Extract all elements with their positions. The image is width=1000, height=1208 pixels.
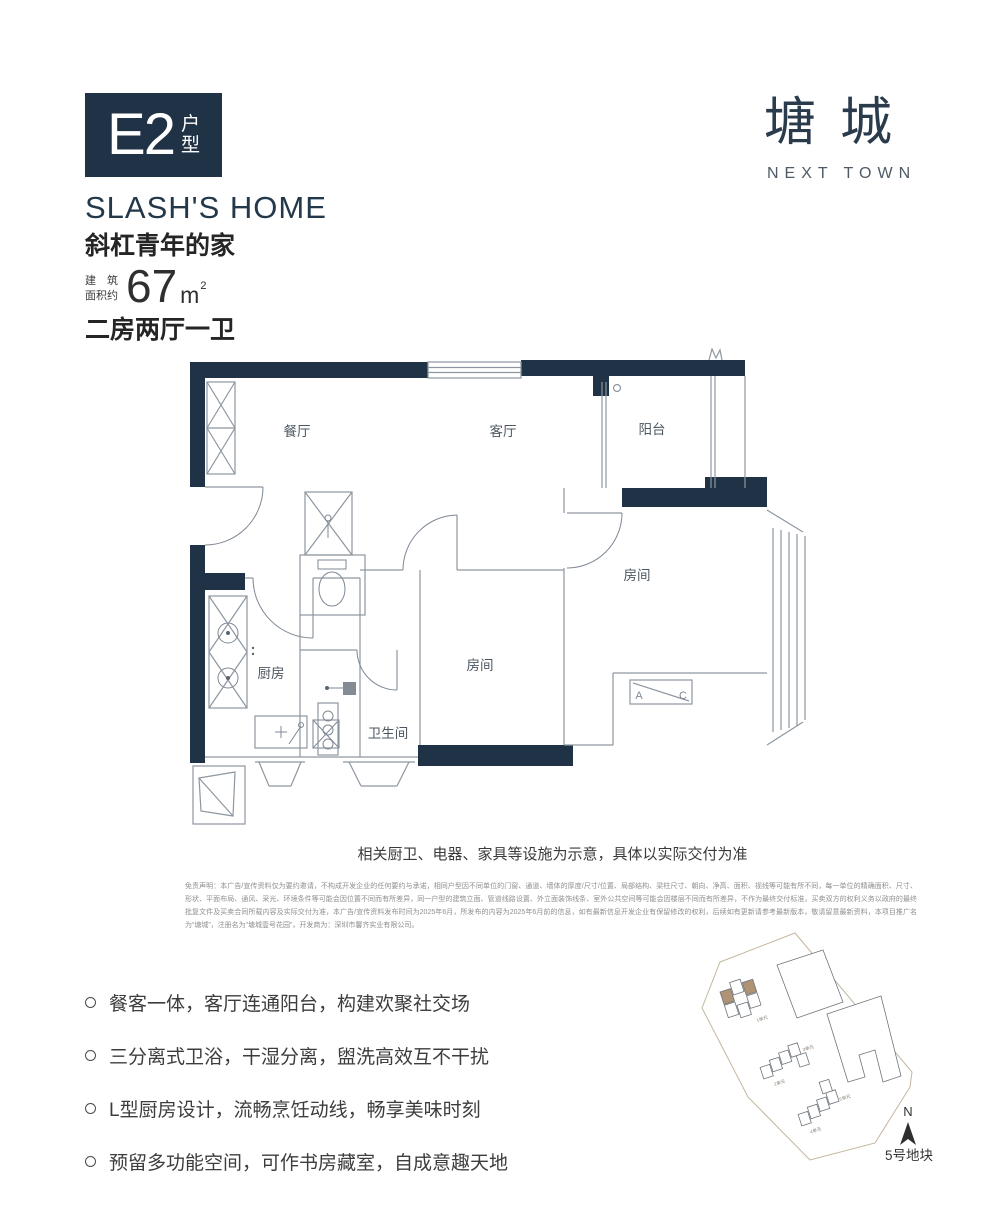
north-label: N (903, 1104, 912, 1119)
stove (209, 596, 254, 708)
headline-cn: 斜杠青年的家 (85, 226, 235, 262)
feature-item: 预留多功能空间，可作书房藏室，自成意趣天地 (85, 1148, 508, 1175)
toilet-room (300, 555, 365, 615)
building-block-l-shape (827, 996, 901, 1082)
building-cluster-2: 3单元 2单元 (756, 1038, 822, 1090)
room-label-dining: 餐厅 (284, 424, 311, 439)
area-exponent: 2 (200, 280, 206, 292)
corner-casement-window (193, 766, 245, 824)
area-label-line2: 面积约 (85, 289, 118, 304)
area-label-line1: 建 筑 (85, 274, 118, 289)
kitchen-sink (255, 716, 307, 748)
brand-logo: 塘城 NEXT TOWN (764, 80, 934, 183)
unit-label: 3单元 (802, 1043, 816, 1053)
bullet-circle-icon (85, 997, 96, 1008)
feature-item: L型厨房设计，流畅烹饪动线，畅享美味时刻 (85, 1095, 508, 1122)
site-plan: 1单元 3单元 2单元 5单元 4单元 N 5号地块 (695, 930, 965, 1195)
unit-type-suffix-bottom: 型 (181, 135, 200, 156)
layout-description: 二房两厅一卫 (85, 310, 235, 346)
feature-text: 餐客一体，客厅连通阳台，构建欢聚社交场 (109, 989, 470, 1016)
bullet-circle-icon (85, 1156, 96, 1167)
living-window (428, 362, 521, 378)
bedroom-right-walls (564, 488, 767, 745)
unit-label: 4单元 (809, 1125, 823, 1135)
room-label-balcony: 阳台 (639, 422, 666, 437)
unit-label: 1单元 (756, 1014, 770, 1024)
brand-logo-cn: 塘城 (764, 80, 934, 155)
plan-caption: 相关厨卫、电器、家具等设施为示意，具体以实际交付为准 (185, 843, 920, 864)
feature-item: 三分离式卫浴，干湿分离，盥洗高效互不干扰 (85, 1042, 508, 1069)
north-arrow-icon: N (900, 1104, 916, 1145)
building-cluster-1: 1单元 (718, 975, 769, 1032)
shower-head-icon (325, 682, 356, 695)
floor-plan: A C (185, 348, 920, 830)
feature-text: 预留多功能空间，可作书房藏室，自成意趣天地 (109, 1148, 508, 1175)
feature-list: 餐客一体，客厅连通阳台，构建欢聚社交场 三分离式卫浴，干湿分离，盥洗高效互不干扰… (85, 989, 508, 1201)
bullet-circle-icon (85, 1050, 96, 1061)
unit-type-suffix: 户 型 (181, 114, 200, 156)
feature-text: 三分离式卫浴，干湿分离，盥洗高效互不干扰 (109, 1042, 489, 1069)
building-cluster-3: 5单元 4单元 (791, 1074, 859, 1137)
area-value: 67 (126, 266, 177, 307)
bedroom-center-walls (360, 515, 564, 745)
shower-room (305, 492, 352, 555)
disclaimer-text: 免责声明：本广告/宣传资料仅为要约邀请，不构成开发企业的任何要约与承诺，相同户型… (185, 880, 917, 932)
room-label-living: 客厅 (490, 423, 517, 439)
balcony-glazing (602, 376, 745, 488)
area-info: 建 筑 面积约 67 m2 (85, 266, 206, 307)
room-label-bathroom: 卫生间 (368, 726, 409, 741)
entry-door (205, 487, 263, 545)
area-label: 建 筑 面积约 (85, 274, 118, 304)
room-label-bedroom-right: 房间 (624, 568, 651, 583)
brand-logo-en: NEXT TOWN (767, 165, 934, 183)
floor-plan-walls (190, 360, 767, 766)
washing-machine (313, 720, 339, 748)
building-block-large (777, 950, 843, 1018)
feature-text: L型厨房设计，流畅烹饪动线，畅享美味时刻 (109, 1095, 481, 1122)
area-unit: m2 (180, 281, 206, 307)
bottom-windows (205, 757, 418, 786)
headline-en: SLASH'S HOME (85, 190, 327, 226)
bay-window (767, 510, 805, 745)
duct-column (207, 382, 235, 474)
plot-number-label: 5号地块 (885, 1148, 934, 1163)
room-label-kitchen: 厨房 (258, 666, 285, 681)
feature-item: 餐客一体，客厅连通阳台，构建欢聚社交场 (85, 989, 508, 1016)
wall-break-symbol (709, 349, 722, 360)
ac-label-c: C (679, 690, 687, 702)
bullet-circle-icon (85, 1103, 96, 1114)
unit-code: E2 (107, 106, 174, 164)
ac-label-a: A (635, 690, 643, 702)
unit-type-suffix-top: 户 (181, 114, 200, 135)
room-label-bedroom-center: 房间 (467, 658, 494, 673)
unit-label: 5单元 (838, 1092, 852, 1102)
unit-type-badge: E2 户 型 (85, 93, 222, 177)
unit-label: 2单元 (773, 1077, 787, 1087)
ac-platform: A C (630, 680, 692, 704)
